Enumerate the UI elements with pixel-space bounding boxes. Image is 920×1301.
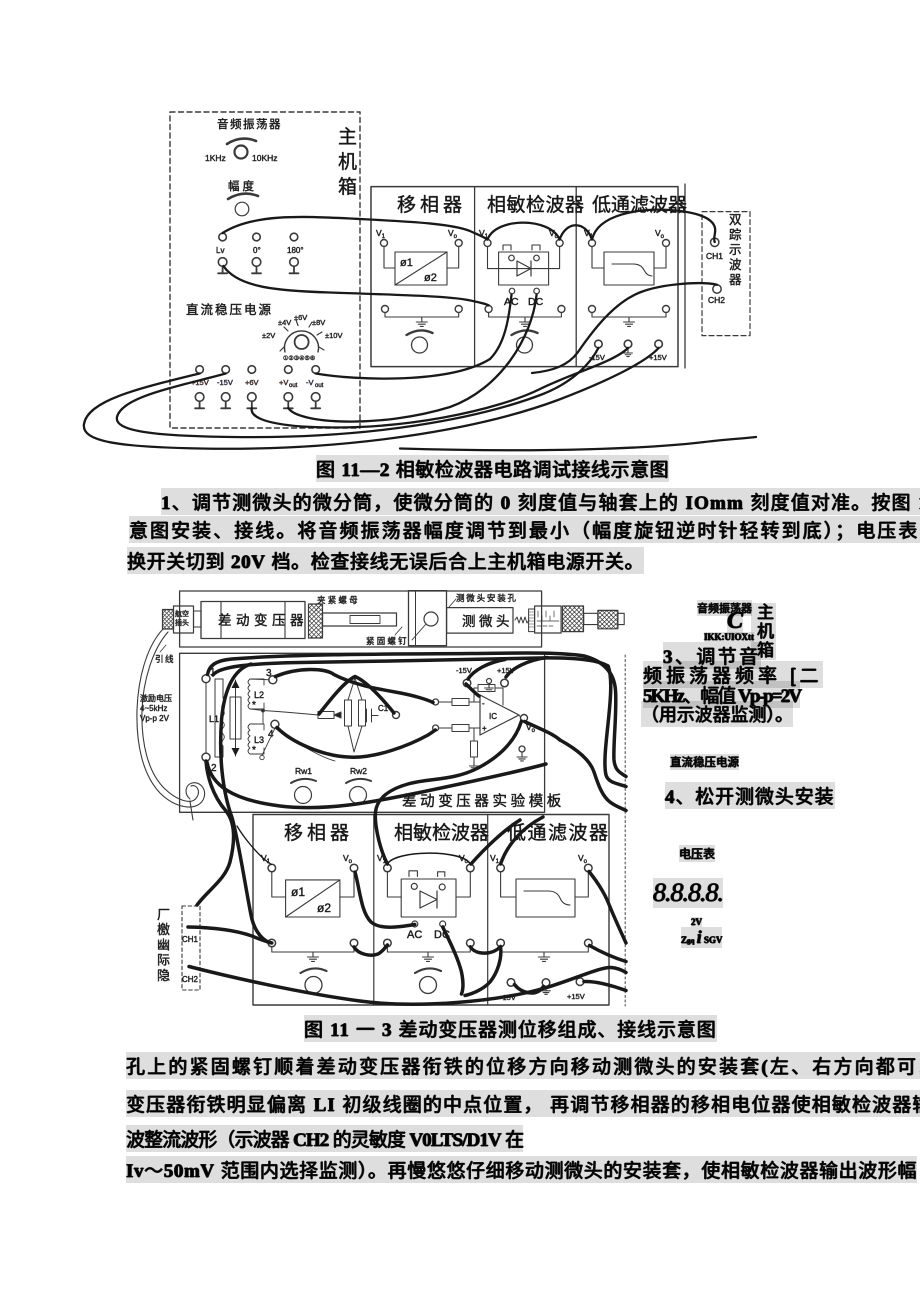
svg-text:主: 主 xyxy=(338,126,357,148)
svg-text:厂: 厂 xyxy=(157,907,170,922)
svg-text:out: out xyxy=(289,383,298,389)
svg-text:L3: L3 xyxy=(254,735,264,745)
svg-text:幽: 幽 xyxy=(157,937,170,952)
svg-text:IC: IC xyxy=(489,712,497,721)
svg-text:ø1: ø1 xyxy=(291,885,305,899)
svg-text:相敏检波器: 相敏检波器 xyxy=(394,822,489,844)
svg-text:音频振荡器: 音频振荡器 xyxy=(217,117,282,131)
svg-text:测微头安装孔: 测微头安装孔 xyxy=(456,593,518,603)
svg-text:夹紧螺母: 夹紧螺母 xyxy=(317,595,360,605)
svg-text:+: + xyxy=(482,724,487,733)
svg-text:Rw2: Rw2 xyxy=(350,766,367,776)
svg-text:Vo: Vo xyxy=(448,228,458,240)
svg-text:AC: AC xyxy=(407,929,422,941)
svg-text:幅度: 幅度 xyxy=(228,179,257,193)
svg-text:V1: V1 xyxy=(376,228,386,240)
svg-text:ø2: ø2 xyxy=(317,901,331,915)
svg-text:差动变压器: 差动变压器 xyxy=(218,613,308,628)
svg-text:①②③④⑤⑥: ①②③④⑤⑥ xyxy=(283,355,315,362)
svg-text:双: 双 xyxy=(729,213,742,227)
svg-text:隐: 隐 xyxy=(157,968,170,983)
svg-text:Vp-p 2V: Vp-p 2V xyxy=(140,714,170,723)
svg-text:3: 3 xyxy=(266,668,272,679)
svg-text:L1: L1 xyxy=(209,714,219,724)
svg-text:180°: 180° xyxy=(287,246,304,255)
svg-text:±10V: ±10V xyxy=(325,331,342,340)
svg-text:+6V: +6V xyxy=(245,378,259,387)
svg-text:箱: 箱 xyxy=(338,176,357,198)
svg-text:+15V: +15V xyxy=(567,992,585,1001)
svg-text:out: out xyxy=(315,383,324,389)
svg-text:引线: 引线 xyxy=(155,654,175,664)
svg-text:ø1: ø1 xyxy=(400,257,413,269)
svg-text:相敏检波器: 相敏检波器 xyxy=(487,194,585,216)
svg-text:CH2: CH2 xyxy=(708,295,725,305)
svg-text:10KHz: 10KHz xyxy=(252,153,278,163)
svg-text:4: 4 xyxy=(268,729,274,740)
svg-text:踪: 踪 xyxy=(729,228,742,242)
svg-text:Vo: Vo xyxy=(655,228,665,240)
svg-text:Vo: Vo xyxy=(578,853,588,865)
svg-text:+V: +V xyxy=(279,378,288,387)
svg-text:移相器: 移相器 xyxy=(284,822,353,844)
svg-text:-: - xyxy=(482,699,485,708)
svg-text:*: * xyxy=(252,745,256,756)
svg-text:CH1: CH1 xyxy=(706,251,723,261)
svg-text:Lv: Lv xyxy=(216,246,224,255)
svg-text:波: 波 xyxy=(729,258,742,272)
svg-text:移相器: 移相器 xyxy=(397,194,466,216)
svg-text:机: 机 xyxy=(338,151,357,173)
svg-text:Vo: Vo xyxy=(343,853,353,865)
svg-text:±4V: ±4V xyxy=(278,318,291,327)
svg-text:1KHz: 1KHz xyxy=(205,153,226,163)
svg-text:±2V: ±2V xyxy=(262,331,275,340)
svg-text:示: 示 xyxy=(729,243,742,257)
svg-text:插头: 插头 xyxy=(175,618,189,627)
svg-text:差动变压器实验模板: 差动变压器实验模板 xyxy=(402,792,565,810)
svg-text:器: 器 xyxy=(729,273,742,287)
svg-text:测微头: 测微头 xyxy=(462,614,513,629)
svg-text:紧固螺钉: 紧固螺钉 xyxy=(366,636,409,646)
svg-text:际: 际 xyxy=(157,953,170,968)
svg-text:V1: V1 xyxy=(490,853,500,865)
svg-text:低通滤波器: 低通滤波器 xyxy=(592,194,687,216)
svg-text:激励电压: 激励电压 xyxy=(140,693,172,703)
svg-text:0°: 0° xyxy=(253,246,261,255)
svg-text:-15V: -15V xyxy=(456,666,472,675)
svg-text:-15V: -15V xyxy=(217,378,233,387)
svg-text:航空: 航空 xyxy=(175,609,189,618)
svg-text:ø2: ø2 xyxy=(424,272,437,284)
svg-text:4~5kHz: 4~5kHz xyxy=(140,704,167,713)
svg-text:±6V: ±6V xyxy=(294,313,307,322)
svg-text:-V: -V xyxy=(306,378,314,387)
svg-text:CH2: CH2 xyxy=(182,975,199,984)
svg-text:直流稳压电源: 直流稳压电源 xyxy=(186,302,273,317)
svg-text:檄: 檄 xyxy=(157,922,170,937)
svg-text:Rw1: Rw1 xyxy=(295,766,312,776)
svg-text:L2: L2 xyxy=(254,690,264,700)
svg-text:±8V: ±8V xyxy=(312,318,325,327)
svg-text:CH1: CH1 xyxy=(182,935,199,944)
